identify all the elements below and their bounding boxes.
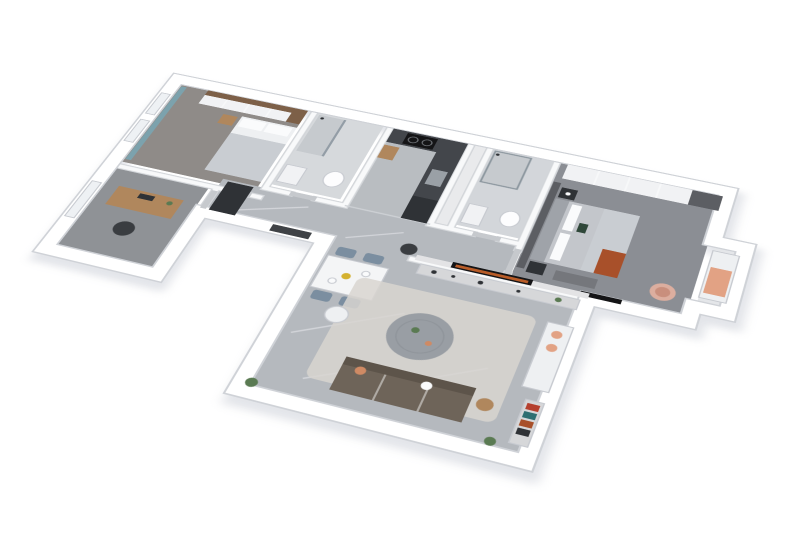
floorplan-stage [0, 0, 795, 537]
floorplan-3d-wrapper [0, 79, 795, 537]
floorplan-svg [0, 79, 795, 537]
